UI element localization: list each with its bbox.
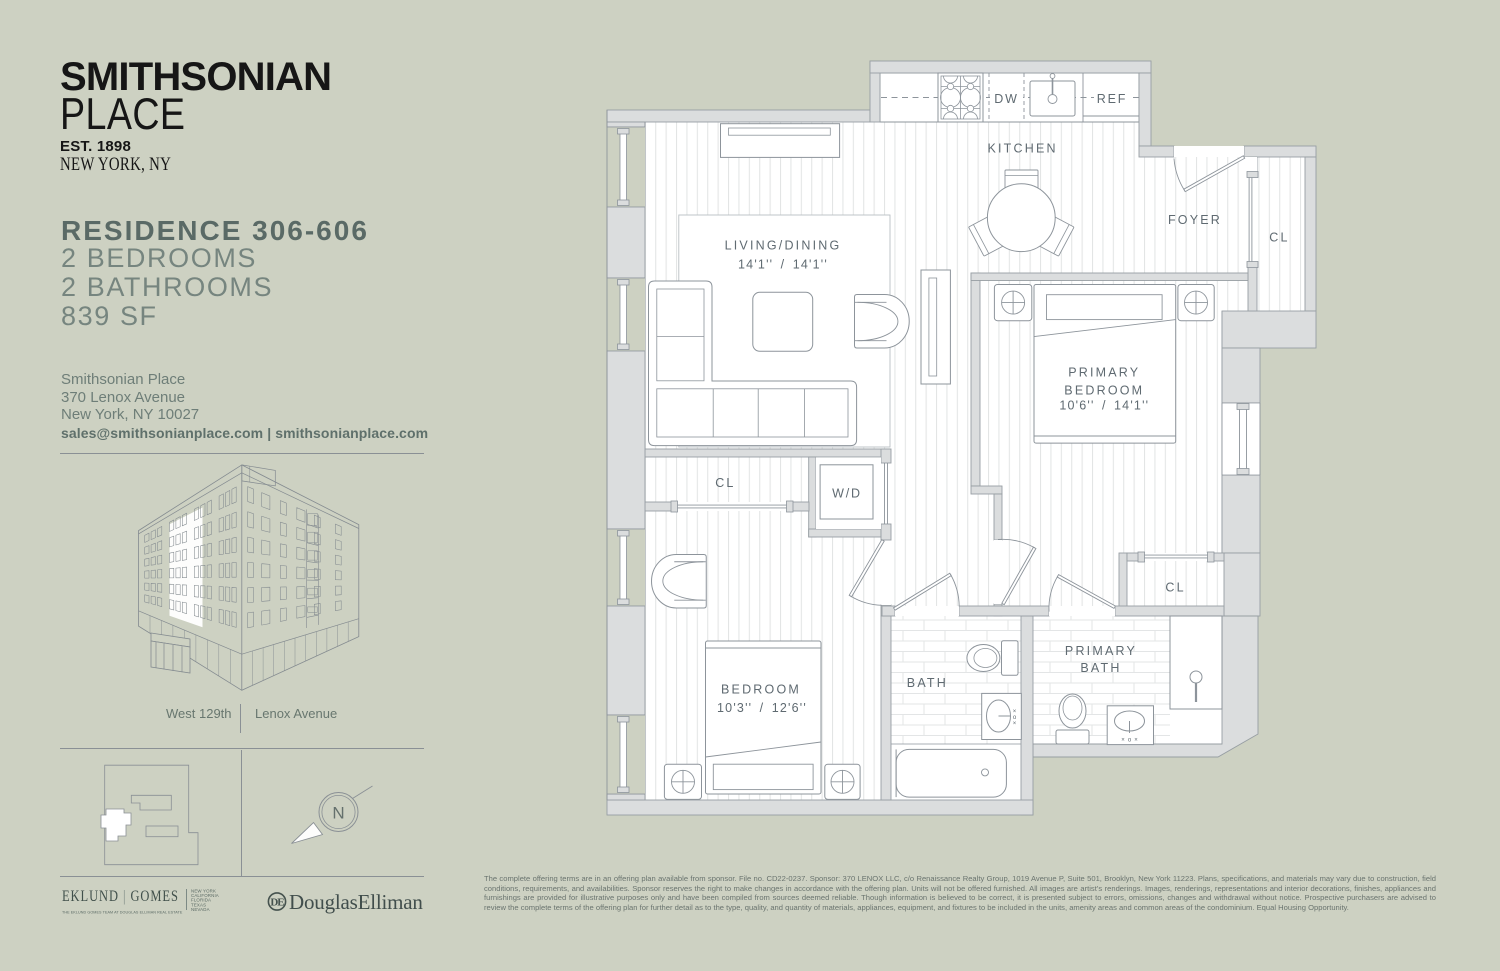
svg-text:N: N xyxy=(332,804,344,823)
